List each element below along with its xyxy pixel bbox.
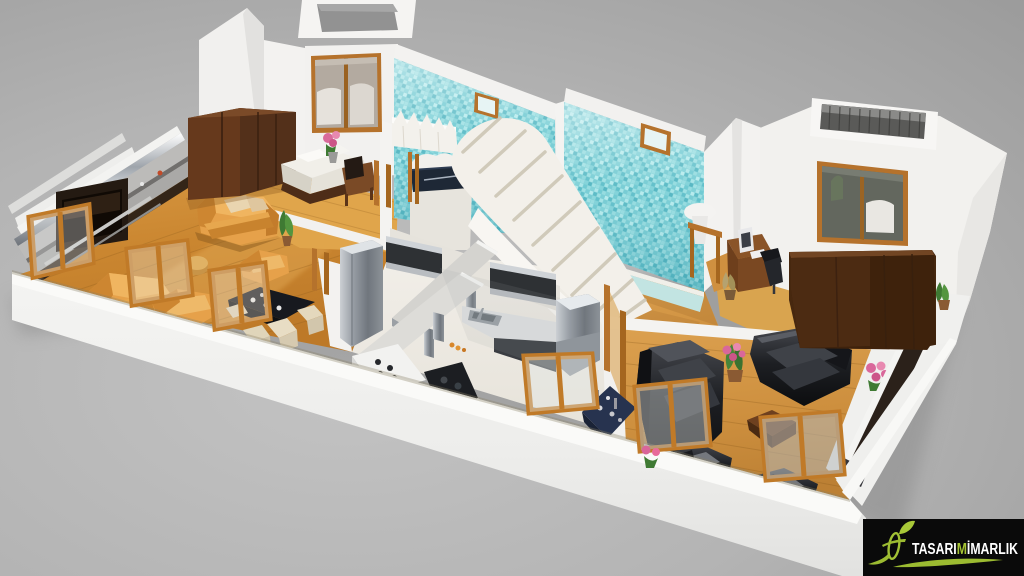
svg-text:TASARIMİMARLIK: TASARIMİMARLIK (912, 541, 1019, 558)
